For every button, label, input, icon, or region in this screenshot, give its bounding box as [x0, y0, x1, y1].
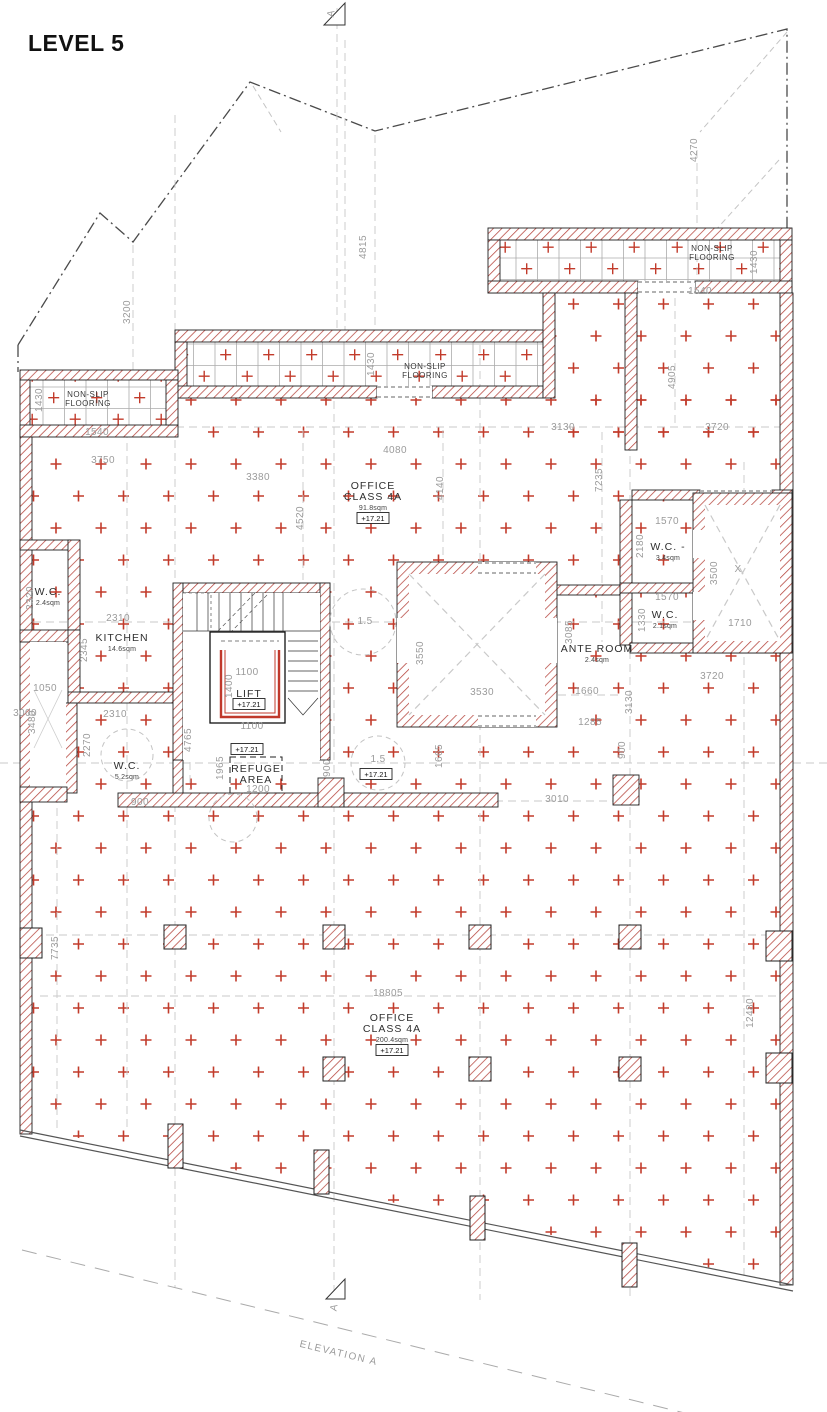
dimension-label: 3720	[700, 671, 724, 682]
dimension-label: 1660	[575, 686, 599, 697]
room-label: KITCHEN	[95, 632, 148, 644]
dimension-label: 4080	[383, 445, 407, 456]
floor-plan: A A ELEVATION A 481542703200143015401430…	[0, 0, 827, 1412]
dimension-label: 4270	[689, 138, 700, 162]
dimension-label: 4140	[435, 476, 446, 500]
dimension-label: 1710	[728, 618, 752, 629]
dimension-label: 1570	[655, 516, 679, 527]
floor-finish-label: NON-SLIP	[404, 362, 446, 371]
dimension-label: 3085	[564, 620, 575, 644]
dimension-label: 1400	[224, 674, 235, 698]
elevation-line-label: ELEVATION A	[298, 1339, 378, 1368]
dimension-label: 18805	[373, 988, 403, 999]
room-area-label: 14.6sqm	[108, 646, 136, 653]
dimension-label: 4815	[358, 235, 369, 259]
elevation-marker-top-label: A	[326, 9, 338, 18]
level-marker: +17.21	[361, 514, 384, 523]
room-area-label: 5.2sqm	[115, 774, 139, 781]
dimension-label: 1665	[434, 744, 445, 768]
dimension-label: 3010	[545, 794, 569, 805]
room-label: ANTE ROOM	[561, 643, 634, 655]
dimension-label: X	[734, 564, 741, 575]
room-label: W.C. -	[650, 541, 685, 553]
dimension-label: 3130	[551, 422, 575, 433]
dimension-label: 1.5	[357, 616, 372, 627]
dimension-label: 1965	[215, 756, 226, 780]
floor-finish-label: FLOORING	[65, 399, 111, 408]
dimension-label: 2345	[79, 638, 90, 662]
dimension-label: 12480	[745, 998, 756, 1028]
level-marker: +17.21	[364, 770, 387, 779]
room-label: W.C.	[652, 609, 679, 621]
room-area-label: 2.4sqm	[36, 600, 60, 607]
dimension-label: 3500	[709, 561, 720, 585]
room-label: AREA	[240, 774, 273, 786]
dimension-label: 2310	[106, 613, 130, 624]
dimension-label: 900	[131, 797, 149, 808]
dimension-label: 900	[322, 759, 333, 777]
room-area-label: 91.8sqm	[359, 505, 387, 512]
dimension-label: 3750	[91, 455, 115, 466]
dimension-label: 1430	[366, 352, 377, 376]
dimension-label: 4905	[667, 365, 678, 389]
dimension-label: 1540	[688, 286, 712, 297]
floor-finish-label: FLOORING	[402, 371, 448, 380]
drawing-sheet: LEVEL 5	[0, 0, 827, 1412]
dimension-label: 7235	[594, 468, 605, 492]
dimension-label: 2270	[82, 733, 93, 757]
room-label: W.C.	[114, 760, 141, 772]
level-marker: +17.21	[237, 700, 260, 709]
dimension-label: 3530	[470, 687, 494, 698]
dimension-label: 2310	[103, 709, 127, 720]
room-area-label: 2.4sqm	[585, 657, 609, 664]
floor-finish-label: FLOORING	[689, 253, 735, 262]
elevation-marker-bottom-icon	[326, 1279, 345, 1299]
room-label: CLASS 4A	[344, 491, 402, 503]
dimension-label: 1570	[655, 592, 679, 603]
floor-finish-label: NON-SLIP	[67, 390, 109, 399]
elevation-marker-bottom-label: A	[329, 1303, 341, 1312]
dimension-label: 3720	[705, 422, 729, 433]
room-area-label: 3.4sqm	[656, 555, 680, 562]
dimension-label: 3380	[246, 472, 270, 483]
dimension-label: 1285	[578, 717, 602, 728]
dimension-label: 4765	[183, 728, 194, 752]
drawing-title: LEVEL 5	[28, 30, 124, 57]
dimension-label: 1430	[34, 388, 45, 412]
dimension-label: 2180	[635, 534, 646, 558]
dimension-label: 900	[617, 741, 628, 759]
room-label: W.C.	[35, 586, 62, 598]
dimension-label: 7735	[50, 936, 61, 960]
dimension-label: 1100	[240, 721, 263, 732]
floor-finish-label: NON-SLIP	[691, 244, 733, 253]
dimension-label: 3200	[122, 300, 133, 324]
room-area-label: 2.1sqm	[653, 623, 677, 630]
dimension-label: 1.5	[370, 754, 385, 765]
dimension-label: 1100	[235, 667, 258, 678]
dimension-label: 1540	[85, 427, 109, 438]
dimension-label: 3480	[27, 710, 38, 734]
dimension-label: 1430	[749, 250, 760, 274]
dimension-label: 3550	[415, 641, 426, 665]
room-label: CLASS 4A	[363, 1023, 421, 1035]
dimension-label: 3130	[624, 690, 635, 714]
level-marker: +17.21	[380, 1046, 403, 1055]
dimension-label: 1050	[33, 683, 57, 694]
dimension-label: 1330	[637, 608, 648, 632]
level-marker: +17.21	[235, 745, 258, 754]
dimension-label: 4520	[295, 506, 306, 530]
room-area-label: 200.4sqm	[376, 1037, 408, 1044]
